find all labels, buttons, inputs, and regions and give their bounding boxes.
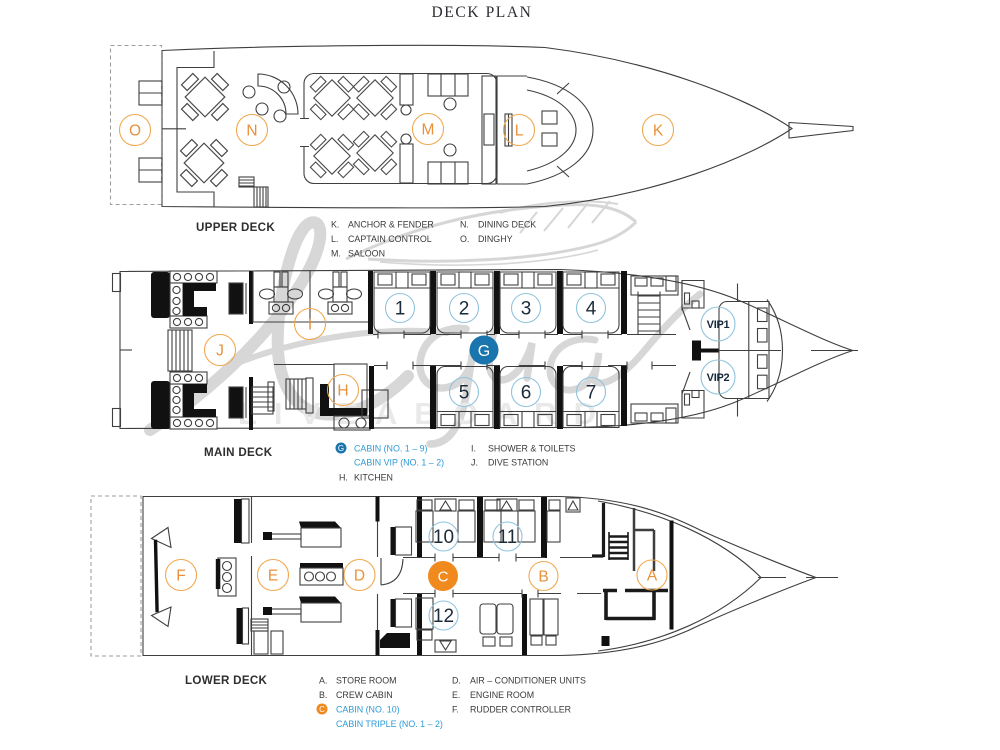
svg-text:RUDDER CONTROLLER: RUDDER CONTROLLER <box>470 705 571 715</box>
svg-text:K: K <box>653 123 664 140</box>
svg-text:DECK PLAN: DECK PLAN <box>432 4 533 21</box>
svg-text:A: A <box>647 568 658 585</box>
svg-text:D.: D. <box>452 676 461 686</box>
svg-text:B: B <box>538 569 548 586</box>
svg-text:D: D <box>354 568 365 585</box>
svg-text:N: N <box>246 123 257 140</box>
svg-text:L: L <box>515 123 524 140</box>
svg-text:CAPTAIN CONTROL: CAPTAIN CONTROL <box>348 234 432 244</box>
svg-text:5: 5 <box>459 383 470 404</box>
svg-text:6: 6 <box>521 383 532 404</box>
svg-text:N.: N. <box>460 220 469 230</box>
svg-text:CREW CABIN: CREW CABIN <box>336 690 393 700</box>
svg-text:M.: M. <box>331 249 341 259</box>
svg-text:G: G <box>338 444 344 453</box>
svg-text:C: C <box>319 705 325 714</box>
svg-text:H.: H. <box>339 473 348 483</box>
svg-text:VIP2: VIP2 <box>707 372 730 384</box>
svg-text:C: C <box>438 569 449 586</box>
svg-text:AIR – CONDITIONER UNITS: AIR – CONDITIONER UNITS <box>470 676 586 686</box>
svg-text:7: 7 <box>586 383 597 404</box>
svg-text:CABIN (NO. 10): CABIN (NO. 10) <box>336 705 400 715</box>
svg-text:H: H <box>337 383 348 400</box>
svg-text:12: 12 <box>433 606 454 627</box>
svg-text:DINING DECK: DINING DECK <box>478 220 536 230</box>
svg-text:2: 2 <box>459 299 470 320</box>
svg-text:L.: L. <box>331 234 338 244</box>
svg-text:1: 1 <box>395 299 406 320</box>
svg-text:10: 10 <box>433 527 454 548</box>
svg-text:KITCHEN: KITCHEN <box>354 473 393 483</box>
svg-text:SALOON: SALOON <box>348 249 385 259</box>
svg-text:F.: F. <box>452 705 459 715</box>
svg-text:UPPER DECK: UPPER DECK <box>196 221 275 234</box>
svg-text:CABIN VIP (NO. 1 – 2): CABIN VIP (NO. 1 – 2) <box>354 458 444 468</box>
svg-text:MAIN DECK: MAIN DECK <box>204 446 273 459</box>
svg-text:STORE ROOM: STORE ROOM <box>336 676 397 686</box>
svg-text:11: 11 <box>498 527 518 548</box>
svg-text:CABIN TRIPLE (NO. 1 – 2): CABIN TRIPLE (NO. 1 – 2) <box>336 719 443 729</box>
svg-text:LOWER DECK: LOWER DECK <box>185 674 268 687</box>
svg-text:VIP1: VIP1 <box>707 319 730 331</box>
svg-text:SHOWER & TOILETS: SHOWER & TOILETS <box>488 444 576 454</box>
svg-text:ENGINE ROOM: ENGINE ROOM <box>470 690 534 700</box>
svg-text:E: E <box>268 568 278 585</box>
svg-text:CABIN (NO. 1 – 9): CABIN (NO. 1 – 9) <box>354 444 428 454</box>
svg-text:F: F <box>176 568 185 585</box>
svg-text:I: I <box>308 317 312 334</box>
svg-text:4: 4 <box>586 299 597 320</box>
svg-text:M: M <box>422 122 435 139</box>
svg-text:B.: B. <box>319 690 327 700</box>
svg-text:E.: E. <box>452 690 460 700</box>
svg-text:DINGHY: DINGHY <box>478 234 513 244</box>
svg-text:O.: O. <box>460 234 469 244</box>
svg-text:I.: I. <box>471 444 476 454</box>
svg-text:3: 3 <box>521 299 532 320</box>
svg-text:ANCHOR & FENDER: ANCHOR & FENDER <box>348 220 434 230</box>
svg-text:K.: K. <box>331 220 339 230</box>
svg-text:G: G <box>478 343 490 360</box>
svg-text:DIVE STATION: DIVE STATION <box>488 458 548 468</box>
svg-text:O: O <box>129 123 141 140</box>
svg-text:A.: A. <box>319 676 327 686</box>
svg-text:J.: J. <box>471 458 478 468</box>
svg-text:J: J <box>216 343 224 360</box>
